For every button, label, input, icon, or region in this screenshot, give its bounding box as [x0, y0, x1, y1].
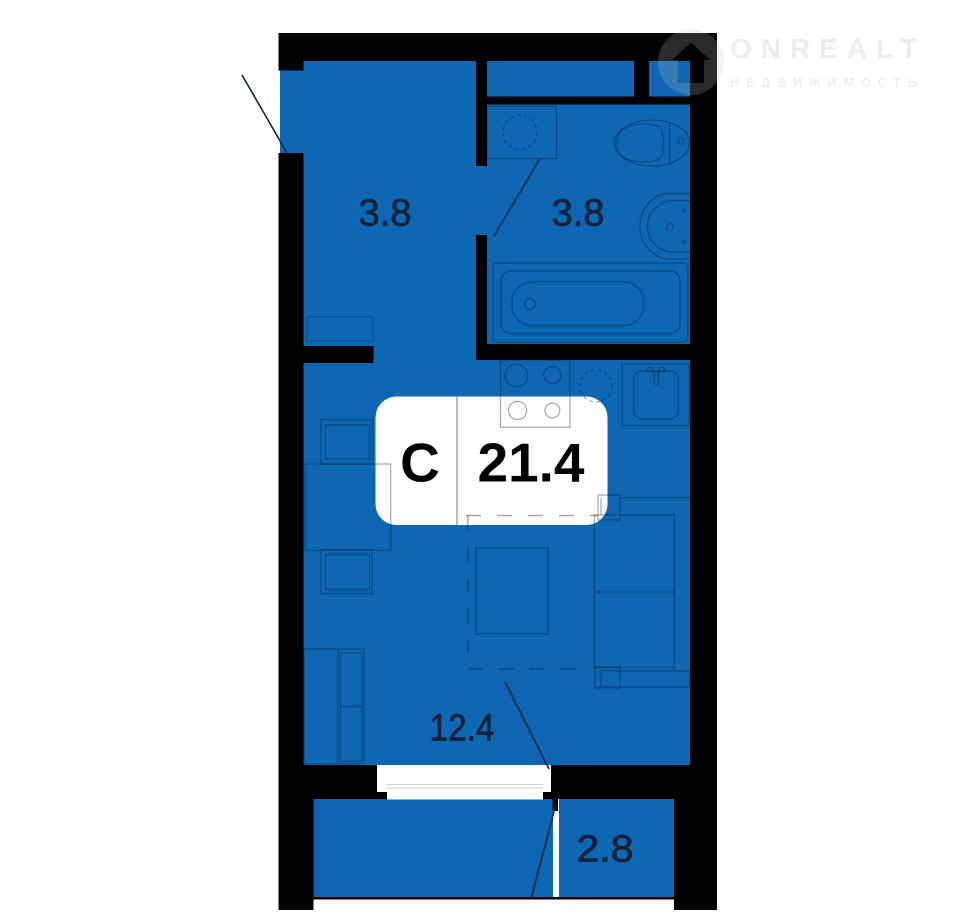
svg-text:С: С	[400, 432, 440, 494]
svg-text:ONREALT: ONREALT	[730, 33, 926, 64]
svg-text:НЕДВИЖИМОСТЬ: НЕДВИЖИМОСТЬ	[730, 75, 924, 90]
svg-text:12.4: 12.4	[430, 708, 495, 750]
svg-text:3.8: 3.8	[359, 193, 412, 235]
svg-text:3.8: 3.8	[552, 193, 605, 235]
svg-text:2.8: 2.8	[577, 829, 634, 871]
svg-text:21.4: 21.4	[478, 432, 585, 494]
